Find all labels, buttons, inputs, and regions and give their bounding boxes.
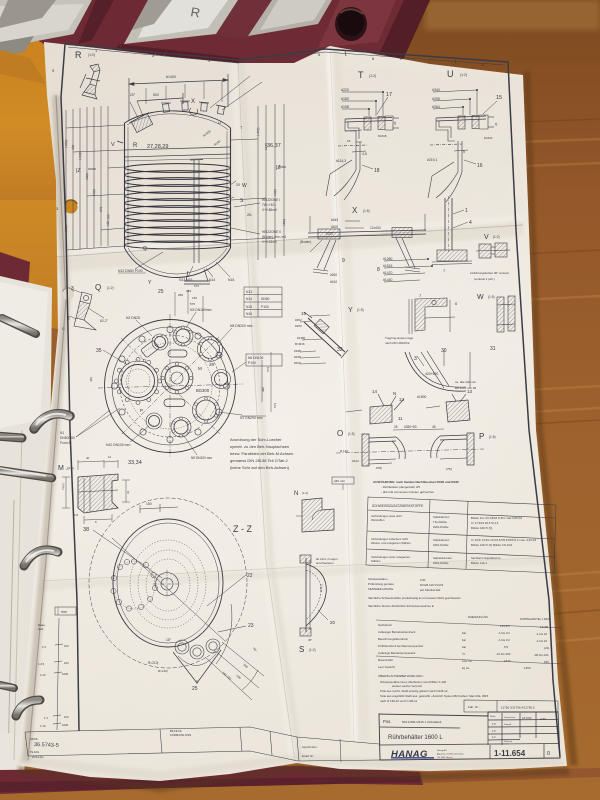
- svg-text:Nachdruck: Nachdruck: [378, 623, 392, 627]
- svg-text:2: 2: [67, 316, 70, 322]
- svg-text:HEIZZONE II: HEIZZONE II: [262, 230, 281, 234]
- svg-text:1608: 1608: [282, 219, 286, 226]
- svg-text:25: 25: [158, 289, 164, 295]
- svg-text:(keine Schr auf den Beh-Achsen: (keine Schr auf den Beh-Achsen): [230, 465, 290, 470]
- svg-text:18: 18: [374, 168, 380, 174]
- svg-text:25: 25: [394, 425, 398, 429]
- svg-text:-1 bis 16: -1 bis 16: [536, 639, 547, 643]
- svg-text:24: 24: [393, 121, 397, 125]
- svg-text:°C: °C: [462, 652, 465, 656]
- svg-text:S: S: [299, 645, 304, 654]
- svg-text:#78|: #78|: [376, 466, 382, 470]
- svg-text:1000: 1000: [62, 723, 69, 727]
- svg-text:13: 13: [467, 389, 473, 394]
- svg-text:stab: stab: [38, 627, 44, 631]
- svg-text:39: 39: [209, 362, 215, 367]
- svg-text:Teile aus angefärbt Stahl aus.: Teile aus angefärbt Stahl aus. gestrahlt…: [380, 694, 489, 698]
- svg-text:TIG-Drähte: TIG-Drähte: [433, 520, 447, 524]
- svg-text:P100: P100: [261, 305, 269, 309]
- svg-text:-1 bis 3,2: -1 bis 3,2: [498, 631, 510, 635]
- svg-text:Böhler Fox CN 18/18 N.B C ma: Böhler Fox CN 18/18 N.B C max 0,95 (Ni: [471, 516, 522, 520]
- svg-text:Berechnungsüberdruck: Berechnungsüberdruck: [378, 637, 408, 641]
- svg-text:Cr 19,5/ 14,5/2 14,5/2,8 5/5: Cr 19,5/ 14,5/2 14,5/2,8 5/5,8 64/5,8 C …: [471, 538, 537, 542]
- svg-text:#350+50: #350+50: [404, 425, 417, 429]
- svg-text:1:5: 1:5: [492, 722, 496, 726]
- svg-text:879: 879: [99, 206, 103, 212]
- svg-text:L50: L50: [192, 296, 197, 300]
- svg-text:Werkst. und unlegierten Stähle: Werkst. und unlegierten Stählen: [371, 541, 411, 545]
- svg-text:Böhler ASN 5 (S): Böhler ASN 5 (S): [471, 526, 492, 530]
- svg-text:575: 575: [194, 284, 199, 288]
- svg-text:nach N 139-10 und N 139-11: nach N 139-10 und N 139-11: [380, 699, 417, 703]
- svg-text:36: 36: [126, 490, 130, 494]
- svg-text:Hanag AG: Hanag AG: [437, 749, 447, 752]
- svg-text:auf Fabrikschild: auf Fabrikschild: [420, 588, 441, 592]
- svg-text:Stählen: Stählen: [371, 559, 381, 563]
- svg-text:Geprüft: Geprüft: [504, 723, 512, 726]
- svg-text:#158: #158: [341, 105, 349, 109]
- svg-text:KENNZEICHNUNG: KENNZEICHNUNG: [368, 587, 394, 591]
- svg-text:Ersatz für:: Ersatz für:: [302, 754, 314, 758]
- svg-text:-1 bis 3,2: -1 bis 3,2: [498, 638, 510, 642]
- svg-text:1670: 1670: [504, 659, 511, 663]
- svg-text:144.3/5: 144.3/5: [500, 624, 510, 628]
- svg-text:100: 100: [64, 661, 69, 665]
- svg-text:45: 45: [432, 425, 436, 429]
- svg-text:Sechserin Supratherme: Sechserin Supratherme: [471, 556, 501, 560]
- svg-text:#1515: #1515: [383, 264, 393, 268]
- svg-text:18: 18: [347, 139, 351, 143]
- svg-text:1000: 1000: [85, 173, 89, 180]
- svg-text:31: 31: [490, 346, 496, 352]
- svg-text:-10 bis 200: -10 bis 200: [496, 652, 511, 656]
- svg-text:symetr. zu den Beh-Hauptachsen: symetr. zu den Beh-Hauptachsen: [230, 444, 289, 449]
- svg-text:(verlertet 2 (ebr.): (verlertet 2 (ebr.): [474, 277, 495, 281]
- svg-text:#260: #260: [330, 273, 337, 277]
- svg-text:#(76,1: #(76,1: [319, 584, 323, 593]
- svg-text:DVGB 106 FV/2/3: DVGB 106 FV/2/3: [420, 583, 444, 587]
- svg-text:#528: #528: [294, 361, 301, 365]
- svg-text:(Boden): (Boden): [300, 240, 311, 244]
- svg-text:Stahlefanzen: Stahlefanzen: [433, 538, 450, 542]
- svg-text:1250: 1250: [524, 666, 531, 670]
- svg-text:ca. alle 220 mm: ca. alle 220 mm: [455, 380, 477, 384]
- svg-text:N6 DN100: N6 DN100: [248, 356, 264, 360]
- svg-text:26: 26: [247, 212, 252, 217]
- svg-text:N15: N15: [228, 278, 234, 282]
- svg-text:X: X: [352, 206, 358, 215]
- svg-text:7W=+32=: 7W=+32=: [262, 203, 276, 207]
- svg-text:U: U: [447, 69, 454, 79]
- svg-text:(1:2): (1:2): [369, 74, 376, 78]
- svg-text:(1:2): (1:2): [460, 73, 467, 77]
- svg-text:(1:5): (1:5): [357, 308, 364, 312]
- svg-text:Q: Q: [95, 283, 101, 292]
- svg-text:X: X: [191, 99, 195, 105]
- svg-text:HEIZZONE I: HEIZZONE I: [262, 198, 280, 202]
- svg-text:14: 14: [372, 389, 378, 394]
- svg-text:(1:1): (1:1): [68, 466, 74, 470]
- svg-text:#122: #122: [352, 459, 359, 463]
- svg-text:11: 11: [398, 416, 403, 421]
- svg-text:35: 35: [96, 348, 102, 354]
- svg-text:P100: P100: [248, 361, 256, 365]
- svg-text:(1:2): (1:2): [107, 286, 114, 290]
- svg-text:Böhler ASN 5 (S) Böhler CN 2: Böhler ASN 5 (S) Böhler CN 23/2: [471, 543, 513, 547]
- svg-text:Stahlefanzen: Stahlefanzen: [433, 515, 450, 519]
- svg-text:SCHWEISSZUSATZWERKSTOFFE: SCHWEISSZUSATZWERKSTOFFE: [372, 504, 423, 508]
- svg-text:#138||: #138||: [297, 336, 305, 340]
- svg-text:(1:2): (1:2): [88, 53, 95, 57]
- svg-text:40: 40: [86, 456, 90, 460]
- svg-text:bezw. Parallelen der Beh-M.Ach: bezw. Parallelen der Beh-M.Achsen: [230, 451, 293, 456]
- svg-text:15°: 15°: [166, 638, 172, 642]
- svg-text:20°: 20°: [130, 93, 136, 97]
- svg-text:4.80: 4.80: [540, 717, 546, 721]
- svg-text:#295: #295: [432, 97, 440, 101]
- svg-text:R: R: [133, 143, 138, 149]
- svg-text:- alle futti vermessen Kanten: - alle futti vermessen Kanten gebrochen: [381, 490, 434, 494]
- svg-text:#220: #220: [341, 88, 349, 92]
- svg-text:zulässiger Betriebsüberdruck: zulässiger Betriebsüberdruck: [378, 630, 416, 634]
- svg-text:503.1/306.1/515.1 (Schälafel): 503.1/306.1/515.1 (Schälafel): [402, 720, 441, 724]
- svg-text:Y: Y: [348, 307, 353, 314]
- svg-text:450: 450: [89, 377, 93, 382]
- svg-text:36.5743-5: 36.5743-5: [34, 742, 59, 749]
- svg-text:#180: #180: [341, 97, 349, 101]
- svg-text:(Boden) 8m=-m3: (Boden) 8m=-m3: [262, 235, 286, 239]
- svg-text:(1:2): (1:2): [309, 648, 316, 652]
- svg-text:B=M16: B=M16: [295, 342, 305, 346]
- svg-text:#252: #252: [295, 318, 302, 322]
- svg-text:0: 0: [547, 751, 550, 757]
- svg-text:(1:2): (1:2): [493, 235, 500, 239]
- svg-text:Q: Q: [143, 246, 147, 252]
- svg-text:380: 380: [261, 387, 265, 392]
- svg-text:Cr 17,5/19 18,5 Ni 2,6: Cr 17,5/19 18,5 Ni 2,6: [471, 521, 499, 525]
- svg-text:#445: #445: [331, 218, 338, 222]
- svg-text:8×#22: 8×#22: [484, 136, 493, 140]
- svg-text:RHEINZUFLÜSS: RHEINZUFLÜSS: [468, 615, 488, 619]
- svg-text:1:1: 1:1: [44, 716, 48, 720]
- svg-text:WAS-Drähte: WAS-Drähte: [433, 561, 449, 565]
- svg-text:8×#18: 8×#18: [378, 134, 387, 138]
- svg-text:CH 4904 Oberaii: CH 4904 Oberaii: [437, 756, 453, 759]
- svg-text:20: 20: [330, 620, 336, 625]
- svg-text:nach DIN 28160 E: nach DIN 28160 E: [385, 341, 410, 345]
- svg-text:Tragring-Hosten-lage: Tragring-Hosten-lage: [385, 336, 414, 340]
- svg-text:150: 150: [146, 502, 152, 506]
- svg-text:(75)|: (75)|: [446, 467, 452, 471]
- svg-text:Anordnung der Schr-Loecher: Anordnung der Schr-Loecher: [230, 437, 282, 442]
- svg-text:1:10: 1:10: [40, 724, 46, 728]
- svg-text:kg ca.: kg ca.: [462, 666, 470, 670]
- svg-text:#1470: #1470: [383, 271, 393, 275]
- svg-text:≤50 mΩ: ≤50 mΩ: [334, 479, 345, 483]
- svg-text:DN50/450: DN50/450: [60, 436, 75, 440]
- svg-text:(1:2): (1:2): [302, 491, 308, 495]
- svg-text:Rauminhalt: Rauminhalt: [378, 658, 393, 662]
- svg-text:N12 DN50 P100: N12 DN50 P100: [118, 269, 143, 273]
- svg-text:N14: N14: [209, 278, 215, 282]
- svg-text:W: W: [477, 294, 484, 301]
- svg-text:180 100: 180 100: [106, 214, 110, 226]
- svg-text:32: 32: [337, 347, 343, 353]
- svg-text:FORMAINL.DSN: FORMAINL.DSN: [170, 733, 191, 737]
- svg-text:|Z: |Z: [76, 168, 81, 174]
- svg-text:12×#30: 12×#30: [370, 226, 381, 230]
- svg-text:38: 38: [83, 527, 89, 533]
- svg-text:#400: #400: [331, 225, 338, 229]
- svg-text:1000: 1000: [62, 672, 69, 676]
- svg-text:18.9.80: 18.9.80: [522, 716, 532, 720]
- svg-text:#1690: #1690: [417, 395, 427, 399]
- svg-text:1130: 1130: [264, 143, 268, 150]
- svg-text:25: 25: [192, 686, 198, 692]
- svg-text:Gezeichnet: Gezeichnet: [504, 716, 515, 719]
- svg-text:11756.3/11756.4/11756.5: 11756.3/11756.4/11756.5: [501, 706, 535, 710]
- svg-text:0,91: 0,91: [420, 578, 426, 582]
- svg-text:420: 420: [71, 144, 75, 150]
- svg-text:100: 100: [64, 644, 69, 648]
- svg-text:(-600): (-600): [64, 139, 68, 148]
- svg-text:12: 12: [108, 455, 112, 459]
- svg-text:DOPPELMANTEL 1 WAN: DOPPELMANTEL 1 WAN: [520, 617, 550, 621]
- svg-text:Fab. Nr. :: Fab. Nr. :: [468, 705, 481, 709]
- svg-text:T: T: [358, 70, 364, 80]
- svg-text:20: 20: [236, 183, 240, 187]
- svg-text:WAS-Drähte: WAS-Drähte: [433, 543, 449, 547]
- svg-text:#228: #228: [294, 355, 301, 359]
- svg-text:(22): (22): [544, 646, 549, 650]
- svg-text:mm: mm: [61, 610, 67, 614]
- svg-text:17: 17: [386, 92, 392, 98]
- svg-text:#250: #250: [295, 324, 302, 328]
- svg-text:N10 DN100 mm: N10 DN100 mm: [106, 443, 130, 447]
- svg-text:R=210|: R=210|: [148, 661, 158, 665]
- svg-text:N: N: [294, 491, 298, 497]
- svg-text:DN50: DN50: [261, 297, 270, 301]
- svg-text:8: 8: [377, 267, 380, 273]
- svg-text:P: P: [479, 432, 484, 441]
- svg-text:500: 500: [153, 93, 159, 97]
- svg-text:#1050: #1050: [383, 257, 393, 261]
- svg-text:bar: bar: [462, 638, 466, 642]
- svg-text:573: 573: [273, 403, 277, 408]
- svg-text:45°: 45°: [308, 638, 312, 642]
- svg-text:Teile aus reinSt. Stahl einwzi: Teile aus reinSt. Stahl einwzig gebeizt …: [380, 689, 448, 693]
- svg-text:aussen secher verputzt: aussen secher verputzt: [392, 684, 422, 688]
- svg-text:(1:5): (1:5): [363, 209, 370, 213]
- svg-text:OBERFLÄCHENBEHANDLUNG:: OBERFLÄCHENBEHANDLUNG:: [378, 674, 424, 678]
- svg-text:4: 4: [469, 220, 472, 226]
- svg-text:573: 573: [266, 367, 270, 372]
- svg-text:#410: #410: [330, 280, 337, 284]
- svg-text:1-11.654: 1-11.654: [494, 749, 526, 758]
- svg-text:3: 3: [71, 286, 74, 292]
- svg-text:(1:5): (1:5): [489, 435, 496, 439]
- svg-text:Werstoffen: Werstoffen: [371, 518, 385, 522]
- svg-text:- Dichtleisten plangedreht 3/5: - Dichtleisten plangedreht 3/5: [381, 485, 420, 489]
- svg-text:N7 DN200 mm: N7 DN200 mm: [240, 416, 263, 420]
- svg-text:AUSFÜHRUNG: nach Sandex Nach: AUSFÜHRUNG: nach Sandex Nachfliesshen RX…: [373, 479, 459, 484]
- svg-text:D: D: [143, 358, 146, 363]
- svg-text:33,34: 33,34: [128, 460, 142, 466]
- svg-text:ein Loch von #6: ein Loch von #6: [455, 386, 477, 390]
- svg-text:420+520: 420+520: [425, 372, 438, 376]
- svg-text:M: M: [198, 366, 202, 371]
- svg-text:#1400: #1400: [166, 75, 176, 79]
- svg-text:Geprüft dam:: Geprüft dam:: [302, 745, 317, 749]
- svg-text:1:2: 1:2: [492, 735, 496, 739]
- svg-text:1:5: 1:5: [492, 729, 496, 733]
- svg-text:bar: bar: [462, 645, 466, 649]
- svg-text:Böhler Cek.1: Böhler Cek.1: [471, 561, 488, 565]
- svg-text:M: M: [58, 465, 64, 472]
- svg-text:V: V: [484, 234, 489, 241]
- svg-text:(1:5): (1:5): [488, 295, 495, 299]
- svg-text:bar: bar: [462, 631, 466, 635]
- svg-text:19: 19: [301, 311, 307, 316]
- svg-text:#340: #340: [432, 88, 440, 92]
- svg-text:62,2°: 62,2°: [100, 319, 109, 323]
- svg-text:Nakanal: Nakanal: [504, 741, 513, 743]
- svg-text:N15: N15: [246, 305, 252, 309]
- svg-text:1320: 1320: [273, 189, 277, 196]
- svg-text:P: P: [140, 408, 143, 413]
- svg-text:anschweissen: anschweissen: [316, 561, 334, 565]
- svg-text:N: N: [393, 391, 396, 396]
- svg-text:3: 3: [414, 356, 417, 362]
- svg-text:R=6: R=6: [73, 513, 79, 517]
- svg-text:N14: N14: [246, 297, 252, 301]
- svg-text:V+0.53m3: V+0.53m3: [262, 240, 277, 244]
- svg-text:23: 23: [248, 623, 254, 629]
- svg-text:R=210|: R=210|: [158, 669, 168, 673]
- svg-text:24: 24: [494, 122, 498, 126]
- svg-text:N9 DN100 mm: N9 DN100 mm: [191, 456, 212, 460]
- svg-text:Prüfüberdruck bei Raumtemperat: Prüfüberdruck bei Raumtemperatur: [378, 644, 423, 648]
- svg-text:#188: #188: [294, 349, 301, 353]
- svg-text:Pos.: Pos.: [383, 719, 391, 724]
- svg-text:#114,3: #114,3: [336, 159, 346, 163]
- svg-text:WOHL(D): WOHL(D): [32, 755, 44, 759]
- svg-text:36,37: 36,37: [267, 143, 281, 149]
- svg-text:TE.FAG: TE.FAG: [30, 750, 39, 754]
- svg-text:(-535): (-535): [78, 151, 82, 160]
- svg-text:Apparate und Maschinenbau: Apparate und Maschinenbau: [437, 753, 464, 756]
- svg-text:1:5: 1:5: [42, 645, 46, 649]
- svg-text:Form A: Form A: [60, 441, 71, 445]
- svg-text:N13 N16: N13 N16: [179, 278, 192, 282]
- svg-text:V+0.86m3: V+0.86m3: [262, 208, 277, 212]
- svg-text:(1:5): (1:5): [348, 432, 355, 436]
- svg-text:9: 9: [342, 258, 345, 264]
- svg-text:Stabelektroden: Stabelektroden: [433, 556, 452, 560]
- svg-text:36/66: 36/66: [30, 737, 38, 741]
- svg-text:R: R: [75, 50, 82, 60]
- svg-text:N13: N13: [246, 290, 252, 294]
- svg-text:WAS-Drähte: WAS-Drähte: [433, 525, 449, 529]
- svg-text:575: 575: [190, 302, 195, 306]
- svg-text:(-470): (-470): [256, 127, 260, 136]
- svg-text:N3 DN100mm: N3 DN100mm: [190, 308, 212, 312]
- svg-text:4,5: 4,5: [362, 152, 367, 156]
- svg-text:V: V: [111, 142, 115, 148]
- svg-text:N1: N1: [60, 431, 64, 435]
- svg-text:Sämtliche Schweissnähte produk: Sämtliche Schweissnähte produktseitig E …: [368, 596, 461, 600]
- svg-text:2-Dichtungsbolzen 90° versetzt: 2-Dichtungsbolzen 90° versetzt: [470, 271, 509, 275]
- svg-text:zulässige Betriebstemperatur: zulässige Betriebstemperatur: [378, 651, 415, 655]
- svg-text:N16: N16: [246, 312, 252, 316]
- svg-text:7±0,5: 7±0,5: [61, 482, 65, 490]
- svg-text:Rührbehälter 1600 L: Rührbehälter 1600 L: [388, 735, 443, 741]
- svg-text:1:20: 1:20: [40, 673, 46, 677]
- svg-text:Sämtliche Stutzen Rehrböhle Sc: Sämtliche Stutzen Rehrböhle Schweissenst…: [368, 604, 434, 608]
- svg-text:#219,1: #219,1: [427, 158, 437, 162]
- svg-text:15: 15: [496, 95, 502, 101]
- svg-text:289: 289: [178, 293, 183, 297]
- svg-text:Schweissdaten: Schweissdaten: [368, 577, 388, 581]
- svg-text:16: 16: [477, 163, 483, 169]
- svg-text:N2 DN25: N2 DN25: [126, 316, 140, 320]
- svg-text:gemaess DIN 28138 Teil 2/Tab.2: gemaess DIN 28138 Teil 2/Tab.2: [230, 458, 289, 463]
- svg-text:-80 bis 230: -80 bis 230: [534, 653, 549, 657]
- svg-text:100: 100: [64, 715, 69, 719]
- svg-text:Prüfumfang gemäss: Prüfumfang gemäss: [368, 582, 394, 586]
- svg-text:-1 bis 16: -1 bis 16: [536, 632, 547, 636]
- svg-text:389: 389: [186, 289, 191, 293]
- svg-text:1000: 1000: [64, 225, 68, 232]
- svg-text:N5 DN200 mm: N5 DN200 mm: [230, 324, 253, 328]
- svg-text:22: 22: [247, 573, 253, 579]
- svg-text:Leer Gewicht: Leer Gewicht: [378, 665, 395, 669]
- svg-text:1: 1: [465, 208, 468, 214]
- svg-text:1:2,5: 1:2,5: [38, 662, 45, 666]
- svg-text:W: W: [242, 183, 247, 189]
- svg-text:1320: 1320: [92, 189, 96, 196]
- svg-text:BG300: BG300: [196, 388, 210, 393]
- svg-text:5,5: 5,5: [504, 645, 508, 649]
- svg-text:C: C: [62, 326, 65, 331]
- svg-text:R 122: R 122: [340, 449, 348, 453]
- svg-text:Maße: Maße: [490, 716, 496, 718]
- svg-text:Z - Z: Z - Z: [233, 524, 252, 534]
- svg-text:O: O: [337, 429, 343, 438]
- svg-text:|Z: |Z: [276, 165, 281, 171]
